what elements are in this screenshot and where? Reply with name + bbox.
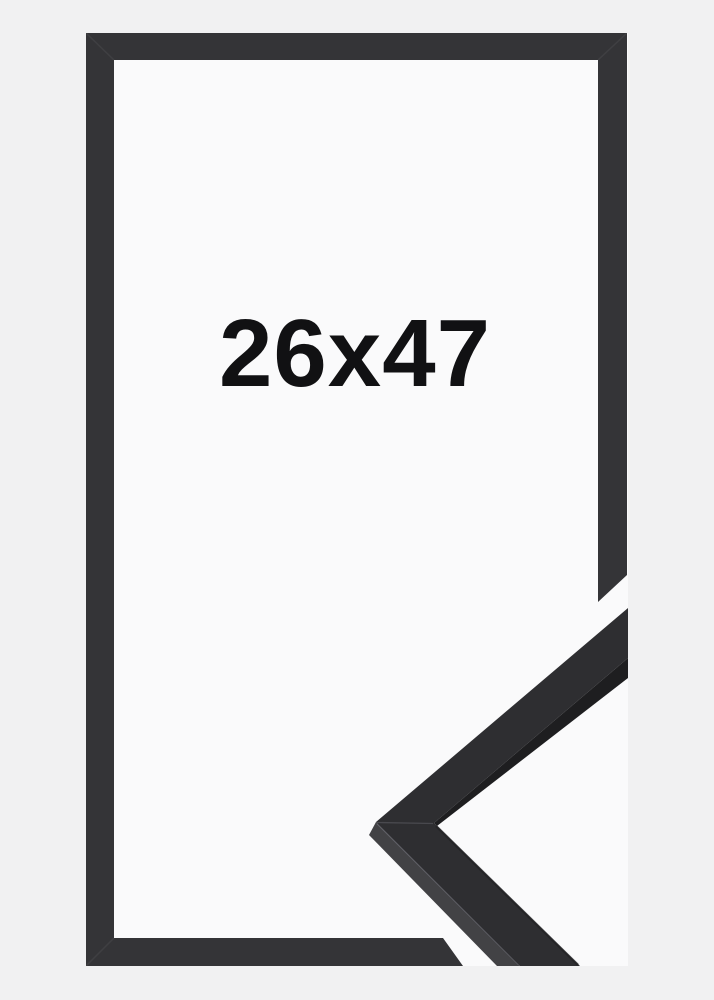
product-photo: 26x47: [0, 0, 714, 1000]
photo-canvas: [86, 33, 628, 966]
frame-size-label: 26x47: [219, 306, 491, 402]
frame-product-graphic: [0, 0, 714, 1000]
